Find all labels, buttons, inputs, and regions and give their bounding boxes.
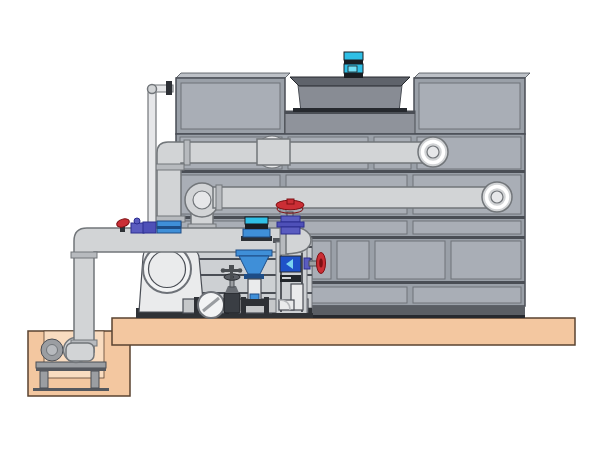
cooling-tower-diagram xyxy=(0,0,600,450)
inline-pump-motor xyxy=(243,229,270,237)
relief-stem xyxy=(230,271,233,279)
fan-cowl xyxy=(290,77,410,112)
diffuser-flange xyxy=(236,250,272,256)
pipe-sleeve-coupling xyxy=(257,139,290,165)
stand-leg xyxy=(40,371,48,388)
globe-valve-body xyxy=(281,227,300,234)
fan-motor xyxy=(344,52,363,78)
ground-platform xyxy=(112,318,575,345)
stand-plate-shadow xyxy=(36,368,106,371)
handwheel-hub xyxy=(287,199,294,204)
column-valve-hub xyxy=(319,259,323,268)
fan-cowl-body xyxy=(298,85,402,112)
pipe-run xyxy=(213,187,489,208)
blue-valve-band xyxy=(157,226,181,229)
sump-suction-elbow xyxy=(66,343,94,361)
tower-panel xyxy=(419,83,520,129)
relief-tip xyxy=(229,265,234,269)
makeup-pipe-elbow xyxy=(148,85,157,94)
fan-cowl-base xyxy=(293,108,407,112)
pipe-end-cap xyxy=(427,146,439,158)
relief-end xyxy=(238,268,243,273)
globe-valve-bonnet xyxy=(281,216,300,222)
tower-panel xyxy=(413,221,521,234)
gate-valve-body xyxy=(224,293,240,313)
drop-pipe-flange xyxy=(243,299,266,306)
purple-valve-body xyxy=(143,222,156,233)
pipe-collar xyxy=(184,140,190,165)
tower-panel xyxy=(375,241,445,279)
relief-end xyxy=(221,268,226,273)
fan-motor-window xyxy=(348,66,357,72)
tower-panel xyxy=(303,221,407,234)
column-base xyxy=(272,313,313,318)
stand-leg xyxy=(91,371,99,388)
inline-pump-cap xyxy=(245,217,268,224)
fan-motor-band xyxy=(344,60,363,64)
fan-cowl-flare xyxy=(290,77,410,86)
column-label-mark xyxy=(282,277,291,279)
tower-panel xyxy=(337,241,369,279)
pipe-collar xyxy=(154,164,184,170)
diagram-canvas xyxy=(0,0,600,450)
stand-plate xyxy=(36,362,106,368)
inline-pump-band xyxy=(245,224,268,229)
panel-seam xyxy=(176,216,525,219)
globe-valve-flange xyxy=(277,222,304,227)
fan-motor-base xyxy=(344,73,363,78)
red-lever-handle xyxy=(116,217,131,228)
fan-motor-cap xyxy=(344,52,363,60)
pump-suction-face xyxy=(149,251,186,288)
wall-flange xyxy=(166,81,172,95)
pipe-elbow-core xyxy=(193,191,211,209)
purple-valve-body xyxy=(131,223,144,233)
purple-valve-bonnet xyxy=(134,218,140,224)
tower-panel xyxy=(413,287,521,303)
tower-panel xyxy=(181,83,280,129)
sump-pump-motor-face xyxy=(47,345,58,356)
pipe-collar xyxy=(216,185,222,210)
panel-seam xyxy=(176,170,525,173)
gate-valve xyxy=(224,274,240,313)
diffuser-collar xyxy=(244,274,264,279)
tower-panel xyxy=(451,241,521,279)
fan-deck-wall xyxy=(285,111,415,134)
pipe-end-cap xyxy=(491,191,503,203)
pipe-collar xyxy=(71,252,97,258)
